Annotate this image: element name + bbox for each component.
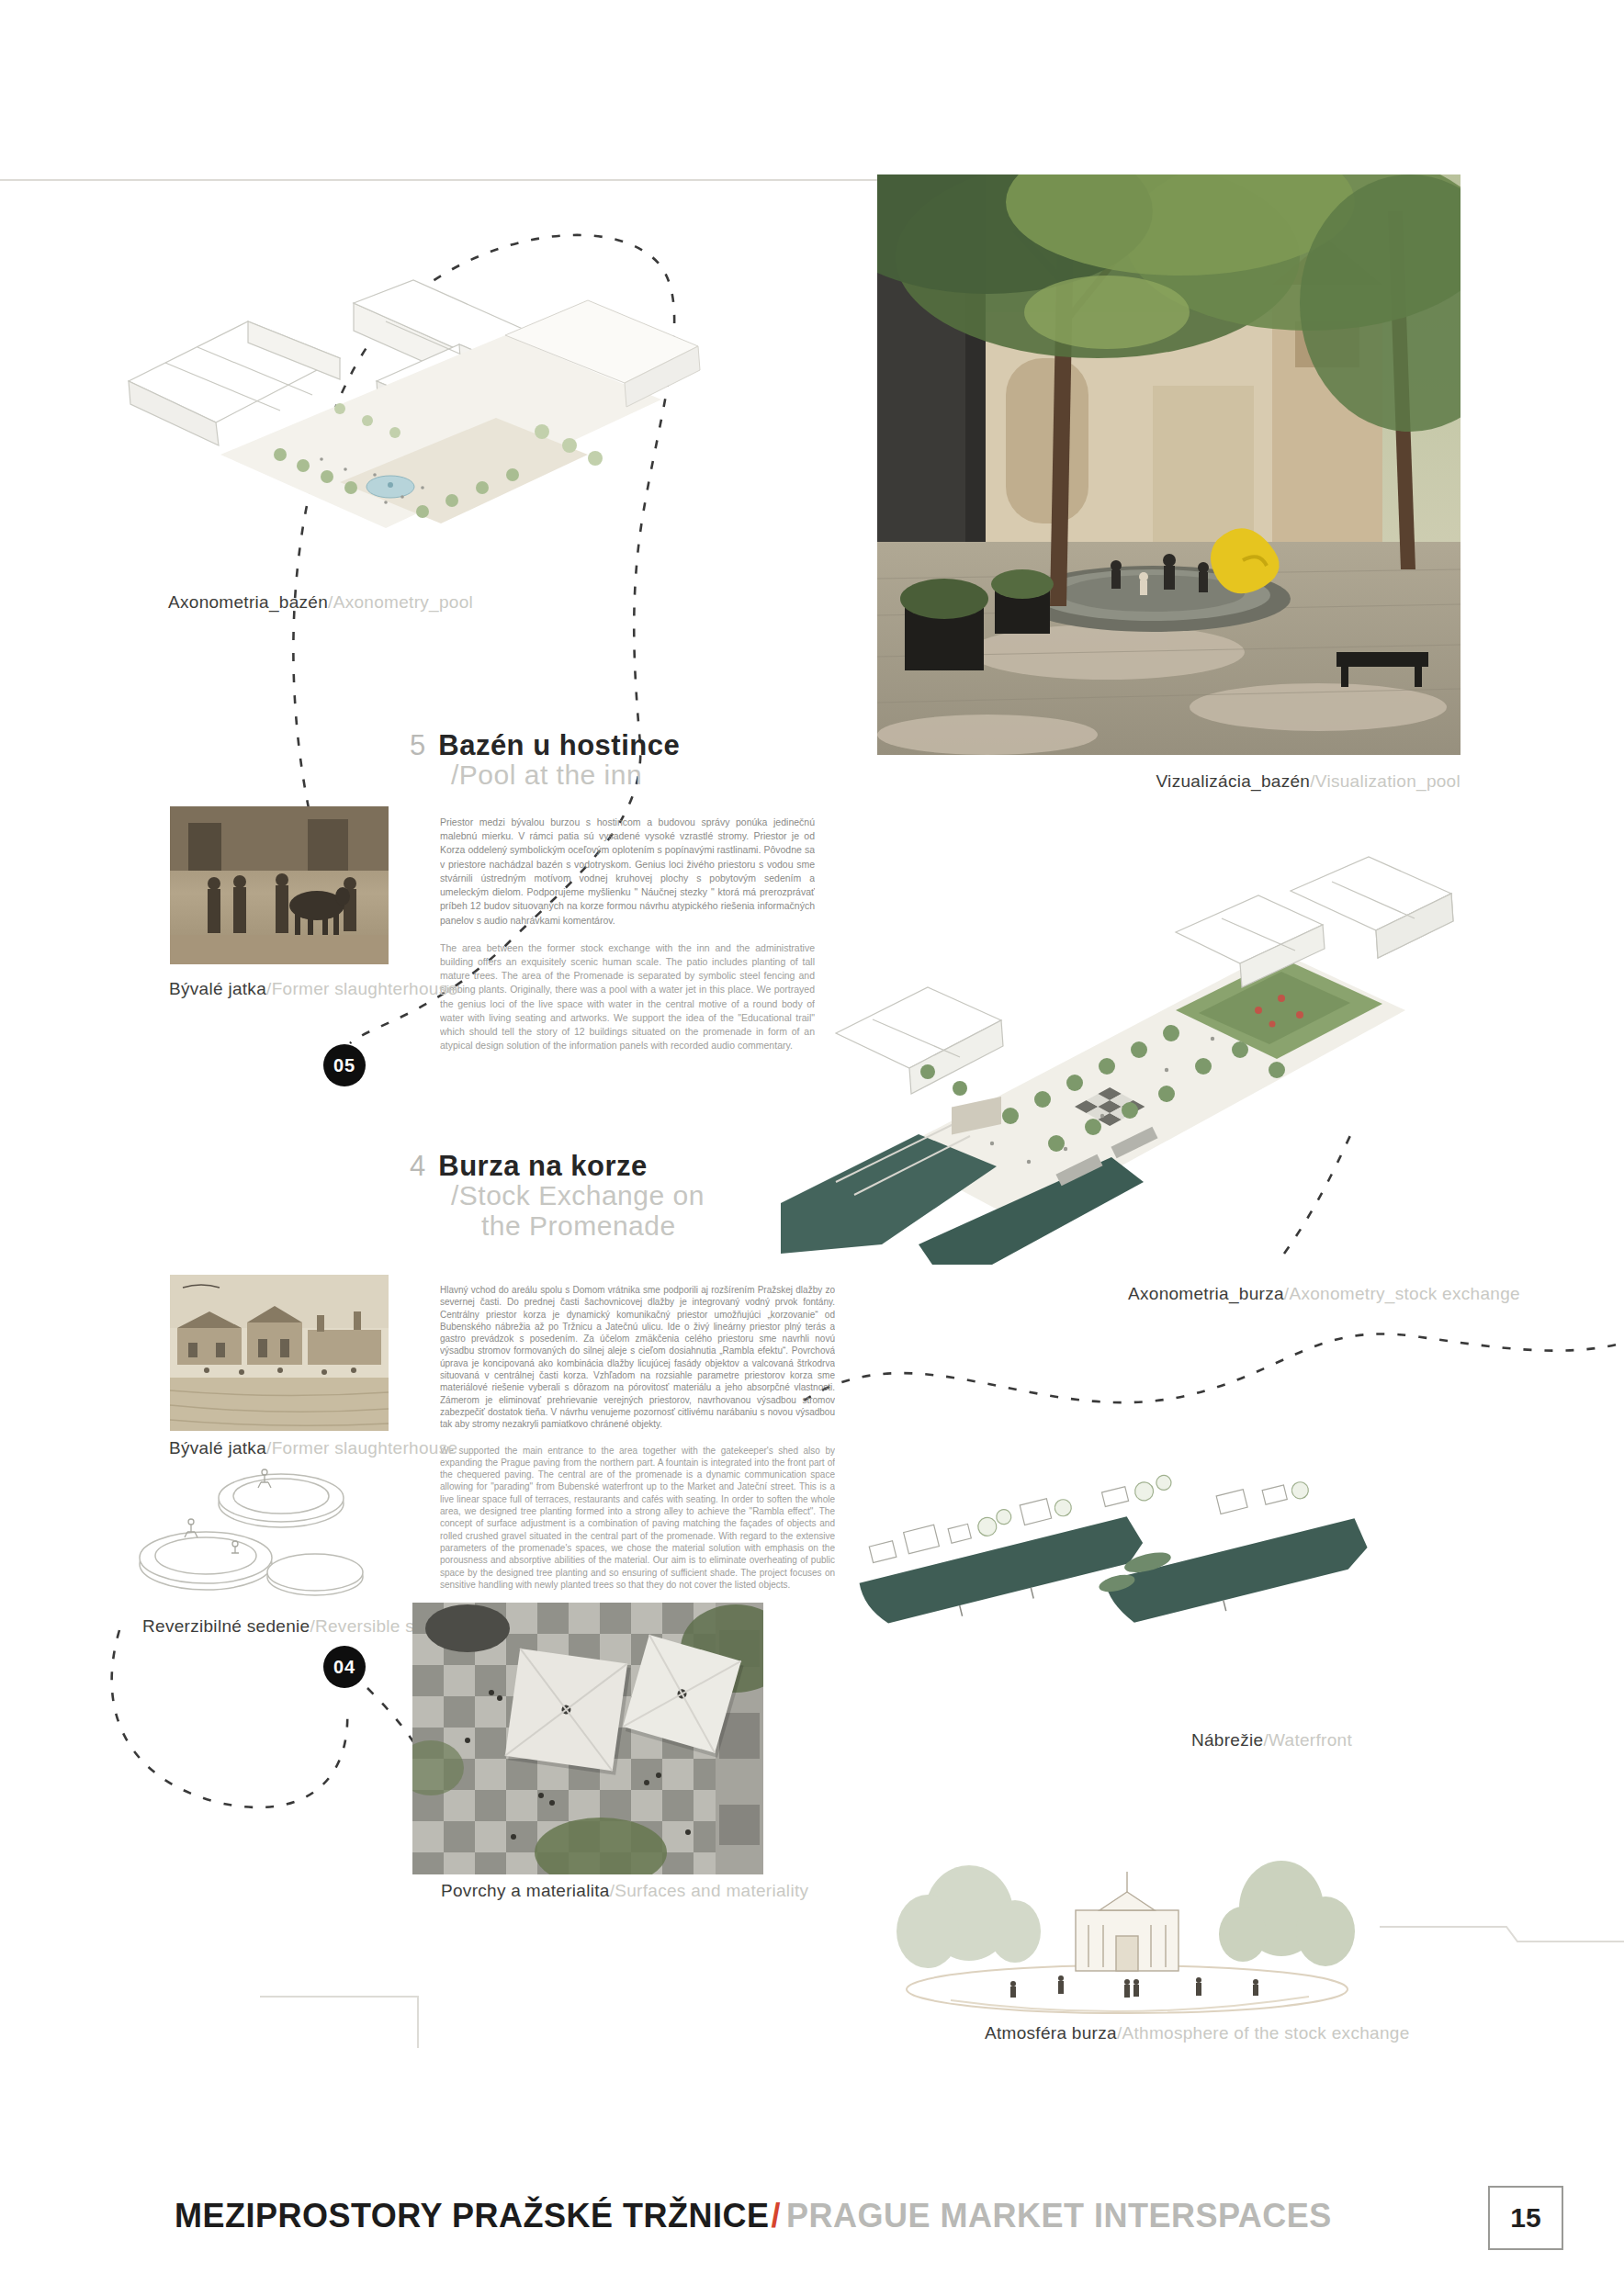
caption-waterfront: Nábrežie/Waterfront [845,1730,1352,1750]
section-pool-body-en: The area between the former stock exchan… [440,941,815,1053]
section-pool-heading: 5 Bazén u hostince /Pool at the inn [410,730,680,791]
caption-axonometry-pool: Axonometria_bazén/Axonometry_pool [168,592,473,613]
caption-atmosphere: Atmosféra burza/Athmosphere of the stock… [985,2023,1410,2043]
axonometry-stock-illustration [781,840,1456,1267]
caption-reversible-seating-sk: Reverzibilné sedenie [142,1616,310,1636]
section-stock-title-en-1: /Stock Exchange on [451,1181,705,1210]
caption-former-slaughterhouse-1-en: /Former slaughterhouse [266,979,457,998]
section-stock-body: Hlavný vchod do areálu spolu s Domom vrá… [440,1284,835,1596]
waterfront-drawing [845,1412,1385,1725]
page-number: 15 [1488,2186,1563,2250]
reversible-seating-drawing [127,1456,370,1610]
section-stock-body-en: We supported the main entrance to the ar… [440,1445,835,1592]
caption-former-slaughterhouse-1: Bývalé jatka/Former slaughterhouse [169,979,457,999]
section-pool-title-en: /Pool at the inn [451,760,680,790]
axonometry-pool-illustration [110,271,744,583]
caption-visualization-pool-en: /Visualization_pool [1310,771,1460,791]
caption-atmosphere-sk: Atmosféra burza [985,2023,1117,2043]
section-pool-body-sk: Priestor medzi bývalou burzou s hostinco… [440,816,815,928]
caption-former-slaughterhouse-2-en: /Former slaughterhouse [266,1438,457,1458]
footer-title: MEZIPROSTORY PRAŽSKÉ TRŽNICE/PRAGUE MARK… [175,2197,1332,2235]
section-stock-body-sk: Hlavný vchod do areálu spolu s Domom vrá… [440,1284,835,1431]
footer-separator: / [771,2197,781,2234]
atmosphere-sketch [896,1844,1359,2019]
caption-waterfront-sk: Nábrežie [1191,1730,1263,1750]
section-stock-heading: 4 Burza na korze /Stock Exchange on the … [410,1151,705,1241]
caption-axonometry-stock-en: /Axonometry_stock exchange [1284,1284,1520,1303]
former-slaughterhouse-photo-1 [170,806,389,964]
caption-axonometry-pool-en: /Axonometry_pool [328,592,473,612]
caption-axonometry-stock: Axonometria_burza/Axonometry_stock excha… [781,1284,1479,1304]
section-pool-number: 5 [410,730,425,760]
section-stock-title-en-2: the Promenade [481,1211,705,1241]
footer-title-en: PRAGUE MARKET INTERSPACES [786,2197,1332,2234]
caption-former-slaughterhouse-2-sk: Bývalé jatka [169,1438,266,1458]
caption-visualization-pool-sk: Vizualizácia_bazén [1156,771,1310,791]
caption-surfaces-materiality-sk: Povrchy a materialita [441,1881,610,1900]
section-stock-number: 4 [410,1151,425,1181]
caption-former-slaughterhouse-1-sk: Bývalé jatka [169,979,266,998]
footer-title-sk: MEZIPROSTORY PRAŽSKÉ TRŽNICE [175,2197,769,2234]
caption-visualization-pool: Vizualizácia_bazén/Visualization_pool [877,771,1460,792]
caption-axonometry-pool-sk: Axonometria_bazén [168,592,328,612]
caption-atmosphere-en: /Athmosphere of the stock exchange [1117,2023,1410,2043]
caption-surfaces-materiality-en: /Surfaces and materiality [610,1881,809,1900]
marker-05: 05 [323,1044,366,1086]
former-slaughterhouse-photo-2 [170,1275,389,1431]
marker-04: 04 [323,1646,366,1688]
caption-axonometry-stock-sk: Axonometria_burza [1128,1284,1284,1303]
caption-surfaces-materiality: Povrchy a materialita/Surfaces and mater… [441,1881,808,1901]
section-pool-body: Priestor medzi bývalou burzou s hostinco… [440,816,815,1062]
section-stock-title-sk: Burza na korze [438,1151,648,1181]
portfolio-page: Axonometria_bazén/Axonometry_pool [0,0,1624,2296]
visualization-pool-photo [877,174,1460,755]
caption-waterfront-en: /Waterfront [1263,1730,1352,1750]
surfaces-materiality-photo [412,1603,763,1874]
section-pool-title-sk: Bazén u hostince [438,730,680,760]
